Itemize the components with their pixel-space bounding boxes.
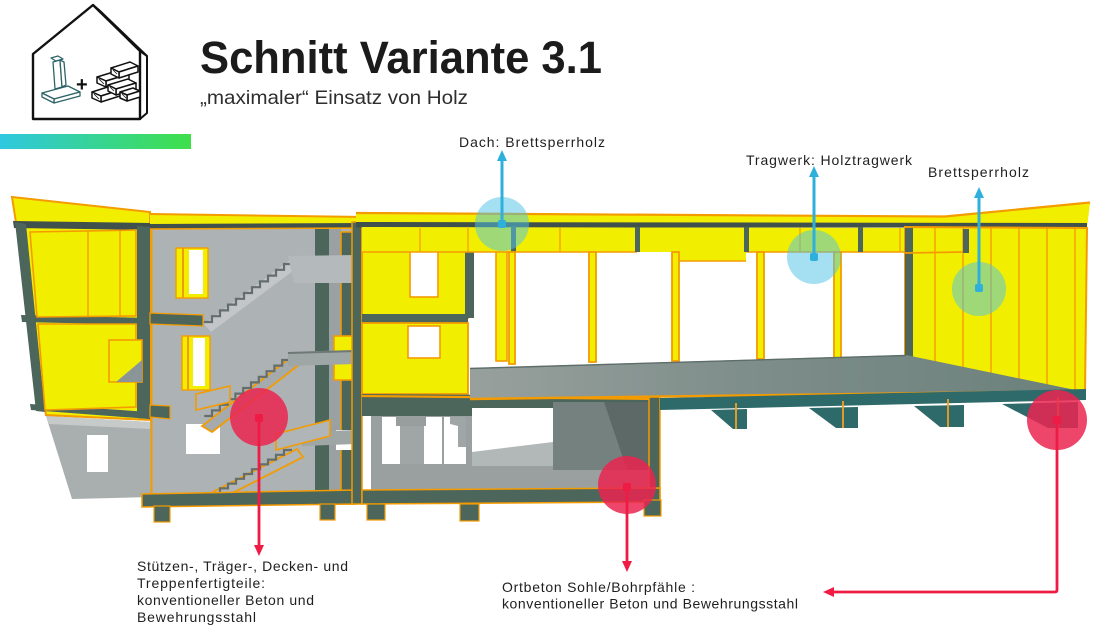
svg-text:+: + <box>76 74 88 96</box>
svg-text:Schnitt Variante 3.1: Schnitt Variante 3.1 <box>200 32 602 83</box>
svg-text:Tragwerk: Holztragwerk: Tragwerk: Holztragwerk <box>746 152 913 168</box>
svg-text:Brettsperrholz: Brettsperrholz <box>928 164 1029 180</box>
svg-text:konventioneller Beton und: konventioneller Beton und <box>137 592 314 608</box>
svg-text:konventioneller Beton und Bewe: konventioneller Beton und Bewehrungsstah… <box>502 596 798 612</box>
svg-text:Stützen-, Träger-, Decken- und: Stützen-, Träger-, Decken- und <box>137 558 348 574</box>
svg-text:Dach: Brettsperrholz: Dach: Brettsperrholz <box>459 134 605 150</box>
svg-text:Ortbeton Sohle/Bohrpfähle :: Ortbeton Sohle/Bohrpfähle : <box>502 579 695 595</box>
svg-text:Bewehrungsstahl: Bewehrungsstahl <box>137 609 256 625</box>
svg-text:Treppenfertigteile:: Treppenfertigteile: <box>137 575 265 591</box>
svg-text:„maximaler“ Einsatz von Holz: „maximaler“ Einsatz von Holz <box>200 87 468 109</box>
